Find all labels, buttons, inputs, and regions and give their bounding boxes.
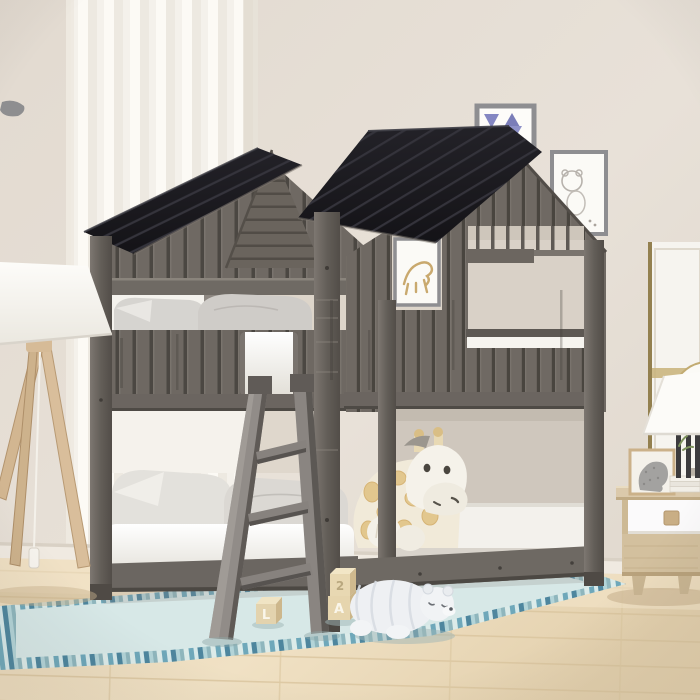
vignette-overlay [0, 0, 700, 700]
bedroom-product-photo: L 2 A [0, 0, 700, 700]
